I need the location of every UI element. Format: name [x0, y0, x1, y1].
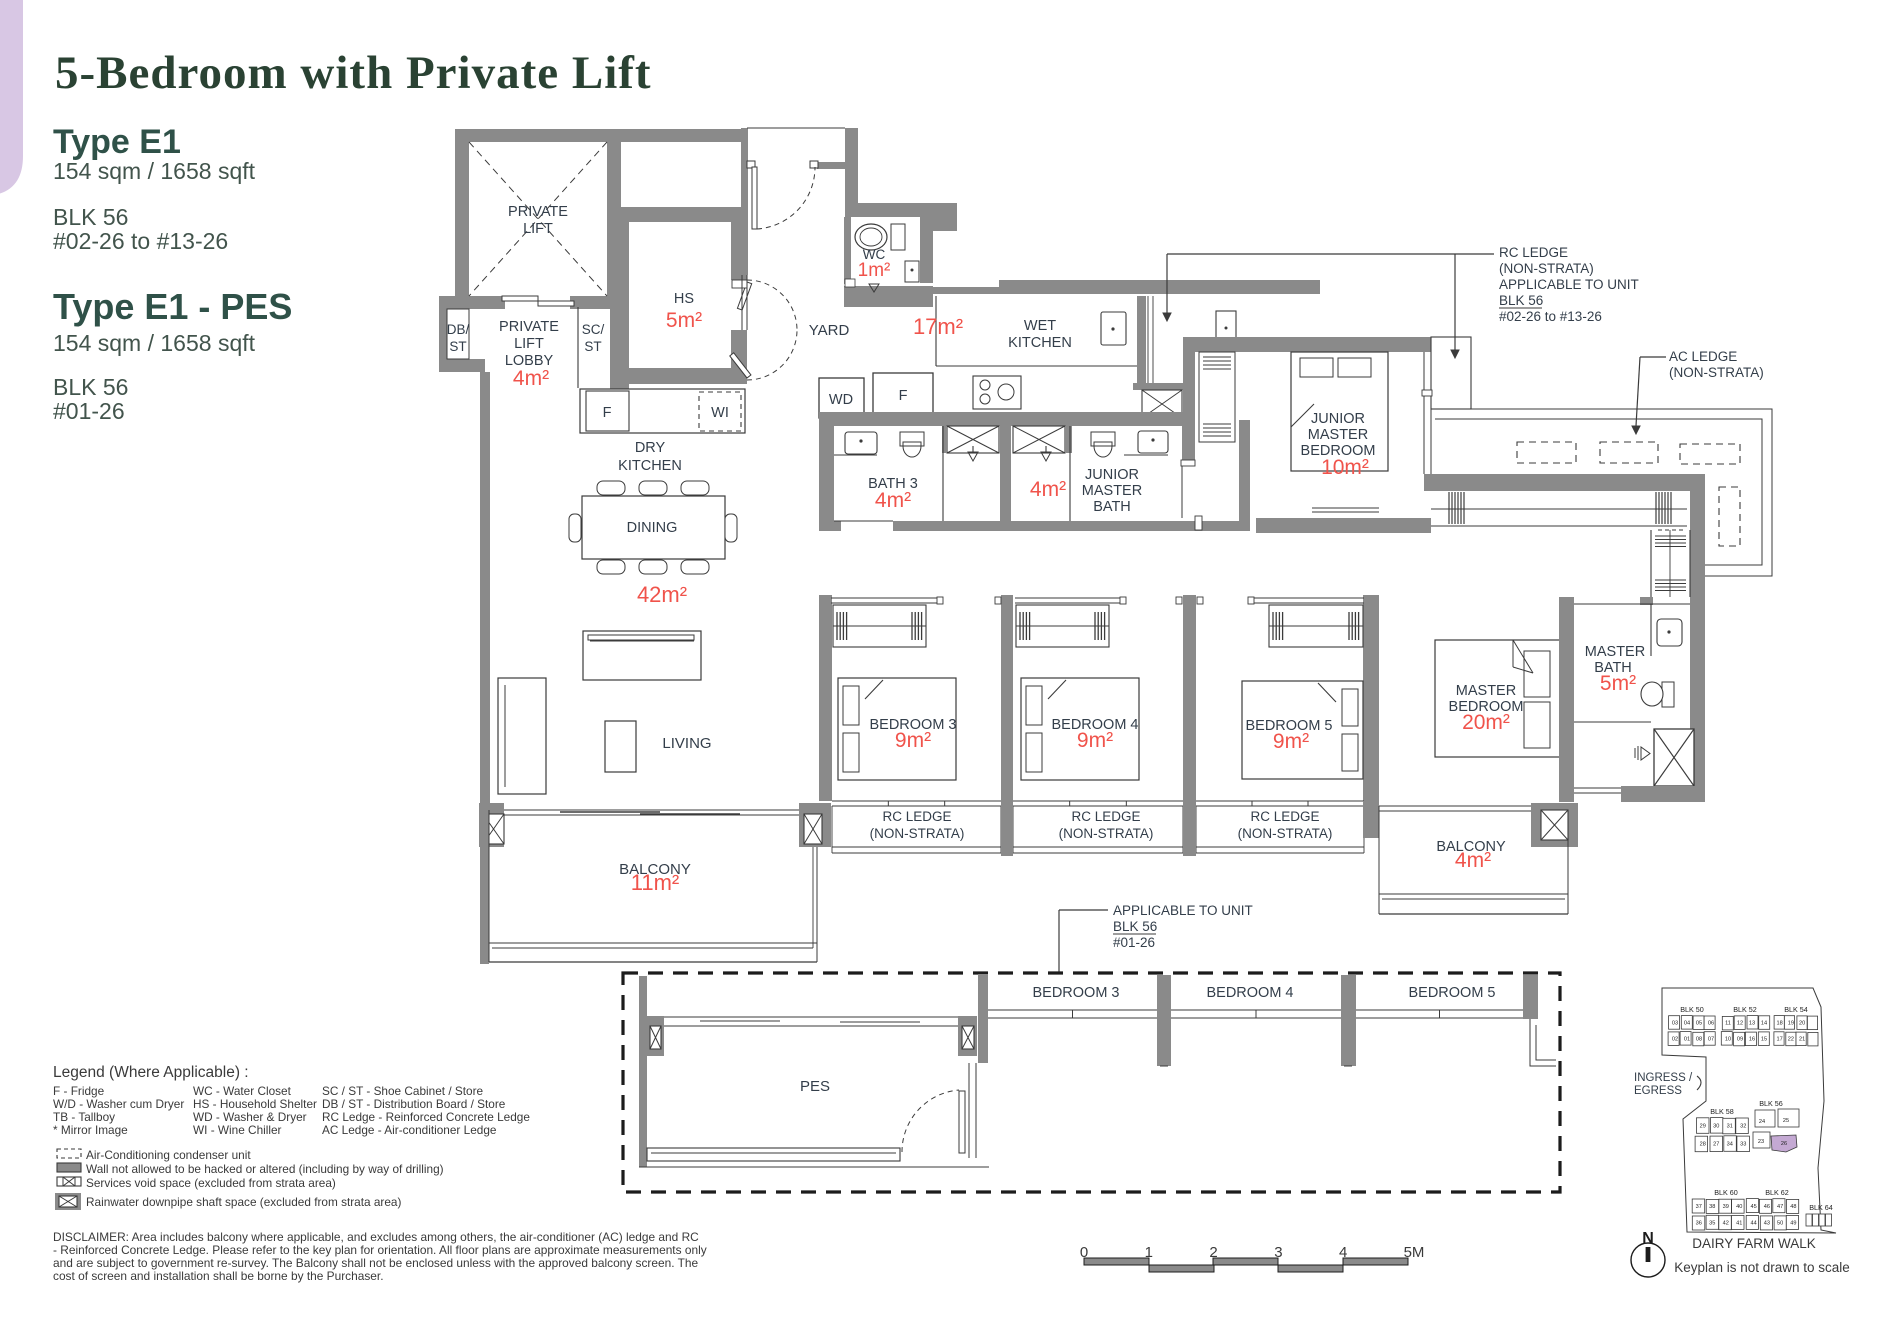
svg-text:#02-26 to #13-26: #02-26 to #13-26 — [1499, 309, 1602, 324]
svg-text:154 sqm / 1658 sqft: 154 sqm / 1658 sqft — [53, 158, 256, 184]
svg-text:BLK 56: BLK 56 — [1759, 1099, 1783, 1108]
svg-text:BLK 64: BLK 64 — [1809, 1203, 1833, 1212]
svg-text:10m²: 10m² — [1321, 456, 1369, 479]
svg-text:04: 04 — [1684, 1021, 1690, 1027]
svg-text:Keyplan is not drawn to scale: Keyplan is not drawn to scale — [1674, 1260, 1850, 1275]
svg-text:DB / ST - Distribution Board /: DB / ST - Distribution Board / Store — [322, 1097, 506, 1111]
svg-text:RC LEDGE: RC LEDGE — [882, 809, 951, 824]
svg-text:33: 33 — [1740, 1142, 1746, 1148]
svg-text:JUNIOR: JUNIOR — [1085, 467, 1139, 483]
svg-text:37: 37 — [1696, 1204, 1702, 1210]
svg-text:(NON-STRATA): (NON-STRATA) — [1059, 826, 1154, 841]
svg-text:BATH: BATH — [1093, 499, 1131, 515]
svg-text:YARD: YARD — [809, 322, 850, 339]
svg-text:07: 07 — [1708, 1037, 1714, 1043]
svg-text:46: 46 — [1764, 1204, 1770, 1210]
svg-text:39: 39 — [1723, 1204, 1729, 1210]
svg-text:WC - Water Closet: WC - Water Closet — [193, 1084, 292, 1098]
svg-text:29: 29 — [1700, 1124, 1706, 1130]
svg-text:#02-26 to #13-26: #02-26 to #13-26 — [53, 228, 228, 254]
svg-text:HS - Household Shelter: HS - Household Shelter — [193, 1097, 317, 1111]
svg-text:43: 43 — [1764, 1220, 1770, 1226]
svg-text:ST: ST — [449, 339, 466, 354]
svg-text:DISCLAIMER: Area includes balc: DISCLAIMER: Area includes balcony where … — [53, 1230, 699, 1244]
svg-text:BEDROOM 3: BEDROOM 3 — [1032, 985, 1119, 1001]
svg-text:11: 11 — [1725, 1021, 1731, 1027]
svg-text:14: 14 — [1761, 1021, 1767, 1027]
svg-text:9m²: 9m² — [1077, 729, 1113, 752]
svg-text:27: 27 — [1713, 1142, 1719, 1148]
svg-text:15: 15 — [1761, 1037, 1767, 1043]
svg-text:20: 20 — [1799, 1021, 1805, 1027]
svg-text:11m²: 11m² — [631, 870, 680, 895]
svg-text:1m²: 1m² — [858, 260, 891, 281]
svg-text:25: 25 — [1783, 1118, 1789, 1124]
svg-text:38: 38 — [1709, 1204, 1715, 1210]
svg-text:DRY: DRY — [635, 440, 666, 456]
svg-text:AC LEDGE: AC LEDGE — [1669, 349, 1737, 364]
svg-text:BLK 56: BLK 56 — [1499, 293, 1543, 308]
svg-text:PRIVATE: PRIVATE — [508, 204, 568, 220]
svg-text:28: 28 — [1700, 1142, 1706, 1148]
svg-text:F - Fridge: F - Fridge — [53, 1084, 105, 1098]
svg-text:5-Bedroom with Private Lift: 5-Bedroom with Private Lift — [55, 47, 652, 99]
svg-text:(NON-STRATA): (NON-STRATA) — [1238, 826, 1333, 841]
svg-text:Services void space (excluded: Services void space (excluded from strat… — [86, 1176, 336, 1190]
svg-text:LIFT: LIFT — [514, 336, 544, 352]
svg-text:F: F — [899, 388, 908, 404]
svg-text:4m²: 4m² — [1030, 478, 1066, 501]
svg-text:18: 18 — [1777, 1021, 1783, 1027]
svg-text:12: 12 — [1737, 1021, 1743, 1027]
svg-text:30: 30 — [1713, 1124, 1719, 1130]
svg-text:44: 44 — [1751, 1220, 1757, 1226]
svg-text:DB/: DB/ — [447, 322, 470, 337]
svg-text:42m²: 42m² — [637, 582, 687, 607]
svg-text:03: 03 — [1672, 1021, 1678, 1027]
svg-text:BEDROOM 5: BEDROOM 5 — [1408, 985, 1495, 1001]
svg-text:MASTER: MASTER — [1082, 483, 1142, 499]
svg-text:40: 40 — [1736, 1204, 1742, 1210]
svg-text:WI: WI — [711, 405, 729, 421]
svg-text:BLK 56: BLK 56 — [1113, 919, 1157, 934]
svg-text:BLK 56: BLK 56 — [53, 374, 128, 400]
svg-text:ST: ST — [584, 339, 601, 354]
svg-text:#01-26: #01-26 — [53, 398, 125, 424]
svg-text:49: 49 — [1790, 1220, 1796, 1226]
svg-text:PES: PES — [800, 1078, 830, 1095]
svg-text:cost of screen and installatio: cost of screen and installation shall be… — [53, 1269, 384, 1283]
svg-text:9m²: 9m² — [1273, 730, 1309, 753]
svg-text:TB - Tallboy: TB - Tallboy — [53, 1110, 115, 1124]
svg-text:Air-Conditioning condenser uni: Air-Conditioning condenser unit — [86, 1148, 251, 1162]
svg-text:19: 19 — [1788, 1021, 1794, 1027]
svg-text:06: 06 — [1708, 1021, 1714, 1027]
svg-text:MASTER: MASTER — [1308, 427, 1368, 443]
svg-text:4m²: 4m² — [513, 367, 549, 390]
svg-text:22: 22 — [1788, 1037, 1794, 1043]
svg-text:32: 32 — [1740, 1124, 1746, 1130]
svg-text:09: 09 — [1737, 1037, 1743, 1043]
svg-text:RC LEDGE: RC LEDGE — [1499, 245, 1568, 260]
svg-text:4m²: 4m² — [1455, 849, 1491, 872]
svg-text:MASTER: MASTER — [1585, 644, 1645, 660]
svg-text:BLK 56: BLK 56 — [53, 204, 128, 230]
svg-text:Legend (Where Applicable) :: Legend (Where Applicable) : — [53, 1064, 249, 1081]
svg-text:WD: WD — [829, 392, 853, 408]
svg-text:Wall not allowed to be hacked: Wall not allowed to be hacked or altered… — [86, 1162, 444, 1176]
svg-text:* Mirror Image: * Mirror Image — [53, 1123, 128, 1137]
svg-text:50: 50 — [1777, 1220, 1783, 1226]
svg-text:(NON-STRATA): (NON-STRATA) — [1669, 365, 1764, 380]
svg-text:INGRESS /: INGRESS / — [1634, 1072, 1693, 1084]
svg-text:16: 16 — [1749, 1037, 1755, 1043]
svg-text:WI - Wine Chiller: WI - Wine Chiller — [193, 1123, 282, 1137]
svg-text:LIFT: LIFT — [523, 221, 553, 237]
svg-text:#01-26: #01-26 — [1113, 935, 1155, 950]
svg-text:48: 48 — [1790, 1204, 1796, 1210]
svg-text:42: 42 — [1723, 1220, 1729, 1226]
svg-text:SC/: SC/ — [582, 322, 605, 337]
svg-text:9m²: 9m² — [895, 729, 931, 752]
svg-text:and are subject to government: and are subject to government re-survey.… — [53, 1256, 698, 1270]
svg-text:23: 23 — [1758, 1139, 1764, 1145]
svg-text:(NON-STRATA): (NON-STRATA) — [870, 826, 965, 841]
svg-text:05: 05 — [1696, 1021, 1702, 1027]
svg-text:02: 02 — [1672, 1037, 1678, 1043]
svg-text:DINING: DINING — [627, 520, 678, 536]
svg-text:- Reinforced Concrete Ledge. P: - Reinforced Concrete Ledge. Please refe… — [53, 1243, 707, 1257]
svg-text:W/D - Washer cum Dryer: W/D - Washer cum Dryer — [53, 1097, 184, 1111]
svg-text:MASTER: MASTER — [1456, 683, 1516, 699]
svg-text:34: 34 — [1727, 1142, 1733, 1148]
svg-text:LIVING: LIVING — [662, 735, 711, 752]
svg-text:24: 24 — [1759, 1119, 1765, 1125]
svg-text:35: 35 — [1709, 1220, 1715, 1226]
svg-text:45: 45 — [1751, 1204, 1757, 1210]
svg-text:KITCHEN: KITCHEN — [1008, 335, 1072, 351]
svg-text:APPLICABLE TO UNIT: APPLICABLE TO UNIT — [1499, 277, 1639, 292]
svg-text:08: 08 — [1696, 1037, 1702, 1043]
svg-text:20m²: 20m² — [1462, 711, 1510, 734]
svg-text:Rainwater downpipe shaft space: Rainwater downpipe shaft space (excluded… — [86, 1195, 401, 1209]
svg-text:F: F — [603, 405, 612, 421]
svg-text:17m²: 17m² — [913, 314, 963, 339]
svg-text:PRIVATE: PRIVATE — [499, 319, 559, 335]
svg-text:Type E1: Type E1 — [53, 123, 181, 161]
svg-text:(NON-STRATA): (NON-STRATA) — [1499, 261, 1594, 276]
svg-text:26: 26 — [1781, 1141, 1787, 1147]
svg-text:WD - Washer & Dryer: WD - Washer & Dryer — [193, 1110, 307, 1124]
svg-text:JUNIOR: JUNIOR — [1311, 411, 1365, 427]
svg-text:BLK 58: BLK 58 — [1710, 1107, 1734, 1116]
svg-text:31: 31 — [1727, 1124, 1733, 1130]
svg-text:RC LEDGE: RC LEDGE — [1071, 809, 1140, 824]
svg-text:EGRESS: EGRESS — [1634, 1085, 1682, 1097]
svg-text:APPLICABLE TO UNIT: APPLICABLE TO UNIT — [1113, 903, 1253, 918]
svg-text:BLK 60: BLK 60 — [1714, 1188, 1738, 1197]
svg-text:BEDROOM 4: BEDROOM 4 — [1206, 985, 1293, 1001]
svg-text:N: N — [1642, 1230, 1654, 1247]
svg-text:36: 36 — [1696, 1220, 1702, 1226]
svg-text:BLK 50: BLK 50 — [1680, 1005, 1704, 1014]
svg-text:4m²: 4m² — [875, 489, 911, 512]
svg-text:BLK 62: BLK 62 — [1765, 1188, 1789, 1197]
svg-text:21: 21 — [1799, 1037, 1805, 1043]
svg-text:HS: HS — [674, 291, 694, 307]
svg-text:17: 17 — [1777, 1037, 1783, 1043]
svg-text:5m²: 5m² — [1600, 672, 1636, 695]
svg-text:RC LEDGE: RC LEDGE — [1250, 809, 1319, 824]
svg-text:154 sqm / 1658 sqft: 154 sqm / 1658 sqft — [53, 330, 256, 356]
svg-text:47: 47 — [1777, 1204, 1783, 1210]
svg-text:AC Ledge - Air-conditioner Led: AC Ledge - Air-conditioner Ledge — [322, 1123, 497, 1137]
svg-text:RC Ledge - Reinforced Concrete: RC Ledge - Reinforced Concrete Ledge — [322, 1110, 530, 1124]
svg-text:BLK 54: BLK 54 — [1784, 1005, 1808, 1014]
svg-text:Type E1 - PES: Type E1 - PES — [53, 286, 292, 327]
svg-text:10: 10 — [1725, 1037, 1731, 1043]
svg-text:5m²: 5m² — [666, 309, 702, 332]
svg-text:DAIRY FARM WALK: DAIRY FARM WALK — [1692, 1236, 1816, 1251]
svg-text:KITCHEN: KITCHEN — [618, 458, 682, 474]
svg-text:SC / ST - Shoe Cabinet / Store: SC / ST - Shoe Cabinet / Store — [322, 1084, 484, 1098]
svg-text:01: 01 — [1684, 1037, 1690, 1043]
svg-text:WET: WET — [1024, 318, 1056, 334]
svg-text:BLK 52: BLK 52 — [1733, 1005, 1757, 1014]
svg-text:13: 13 — [1749, 1021, 1755, 1027]
svg-text:41: 41 — [1736, 1220, 1742, 1226]
